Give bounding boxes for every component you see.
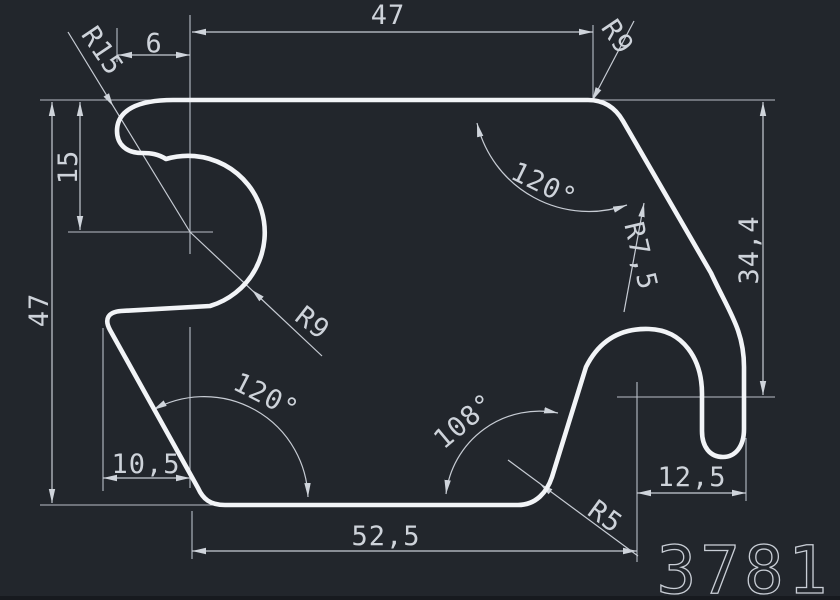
angle-top-right-label: 120° (506, 156, 582, 214)
dim-bottom-left-width-label: 10,5 (111, 449, 180, 480)
radius-top-right-label: R9 (595, 14, 640, 60)
dim-top-left-offset-label: 9 (144, 26, 161, 57)
dim-right-height-label: 34,4 (734, 215, 765, 284)
radius-right-label: R7,5 (617, 219, 663, 293)
dim-bottom-width-label: 52,5 (351, 521, 420, 552)
radius-bottom-right-label: R5 (582, 494, 628, 539)
drawing-canvas: 47 9 15 47 34,4 52,5 10,5 12,5 120° 120°… (0, 0, 840, 600)
radius-middle-label: R9 (289, 300, 335, 346)
dim-top-width-label: 47 (371, 0, 406, 31)
part-number: 3781 (657, 532, 832, 600)
bottom-strip (0, 596, 840, 600)
cad-drawing: 47 9 15 47 34,4 52,5 10,5 12,5 120° 120°… (0, 0, 840, 600)
profile-outline (107, 100, 744, 505)
dim-bottom-right-width-label: 12,5 (657, 462, 726, 493)
dimension-labels: 47 9 15 47 34,4 52,5 10,5 12,5 120° 120°… (24, 0, 765, 552)
radius-top-left-label: R15 (75, 21, 130, 81)
dim-left-height-label: 47 (24, 293, 55, 328)
dim-left-upper-height-label: 15 (53, 150, 84, 185)
angle-bottom-right-label: 108° (428, 387, 501, 455)
